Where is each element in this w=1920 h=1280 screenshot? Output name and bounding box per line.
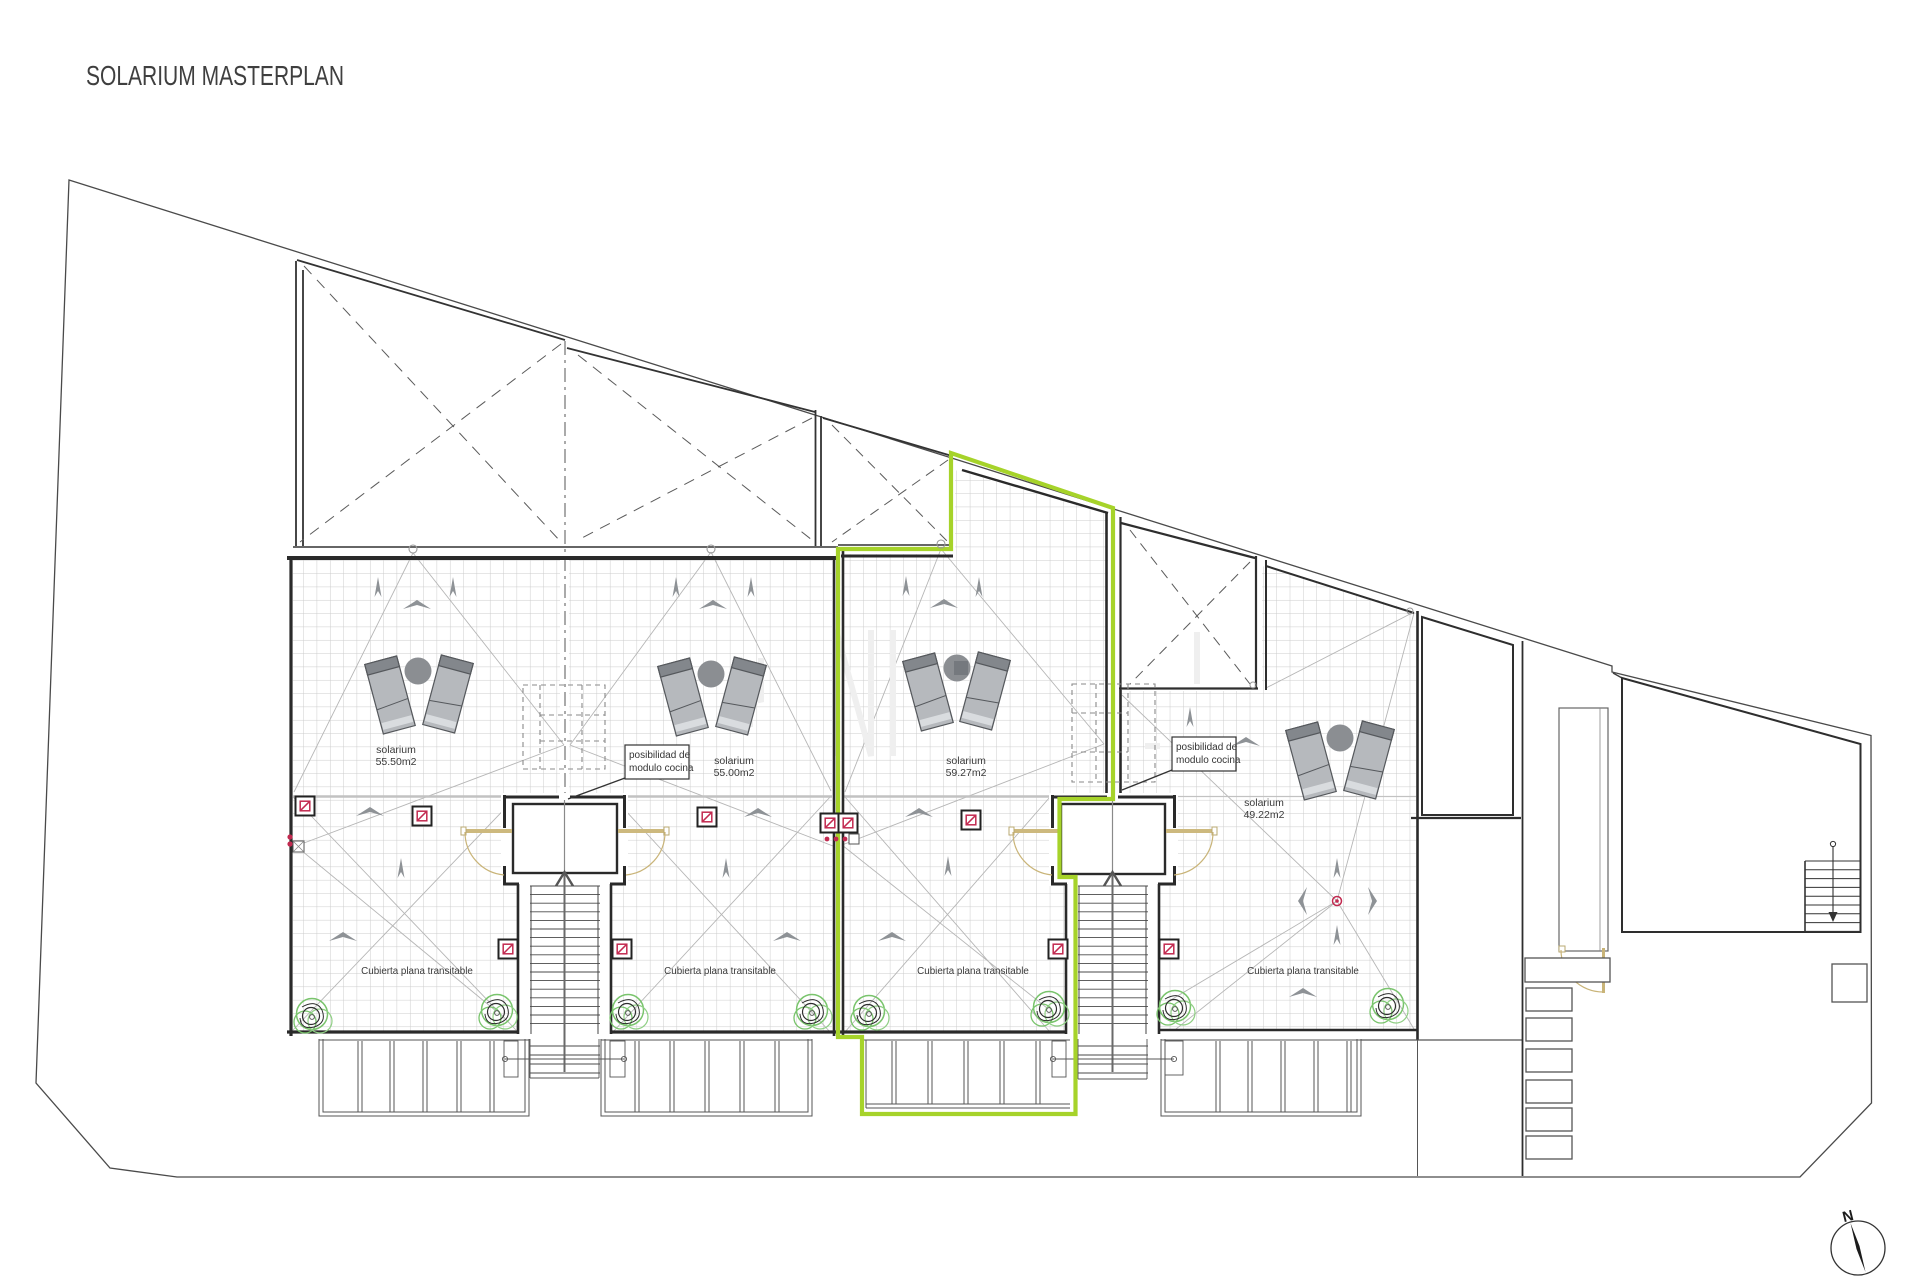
svg-text:solarium: solarium bbox=[376, 744, 416, 756]
svg-text:59.27m2: 59.27m2 bbox=[946, 767, 987, 779]
svg-text:solarium: solarium bbox=[714, 755, 754, 767]
svg-text:posibilidad de: posibilidad de bbox=[629, 750, 691, 761]
svg-text:55.00m2: 55.00m2 bbox=[714, 767, 755, 779]
svg-text:49.22m2: 49.22m2 bbox=[1244, 809, 1285, 821]
svg-text:Cubierta plana transitable: Cubierta plana transitable bbox=[917, 966, 1029, 977]
svg-text:modulo cocina: modulo cocina bbox=[629, 763, 694, 774]
svg-text:55.50m2: 55.50m2 bbox=[376, 756, 417, 768]
svg-text:Cubierta plana transitable: Cubierta plana transitable bbox=[1247, 966, 1359, 977]
svg-text:Cubierta plana transitable: Cubierta plana transitable bbox=[664, 966, 776, 977]
svg-text:solarium: solarium bbox=[1244, 797, 1284, 809]
svg-text:SOLARIUM MASTERPLAN: SOLARIUM MASTERPLAN bbox=[86, 60, 344, 91]
svg-text:modulo cocina: modulo cocina bbox=[1176, 755, 1241, 766]
svg-text:Cubierta plana transitable: Cubierta plana transitable bbox=[361, 966, 473, 977]
svg-text:solarium: solarium bbox=[946, 755, 986, 767]
svg-text:posibilidad de: posibilidad de bbox=[1176, 742, 1238, 753]
